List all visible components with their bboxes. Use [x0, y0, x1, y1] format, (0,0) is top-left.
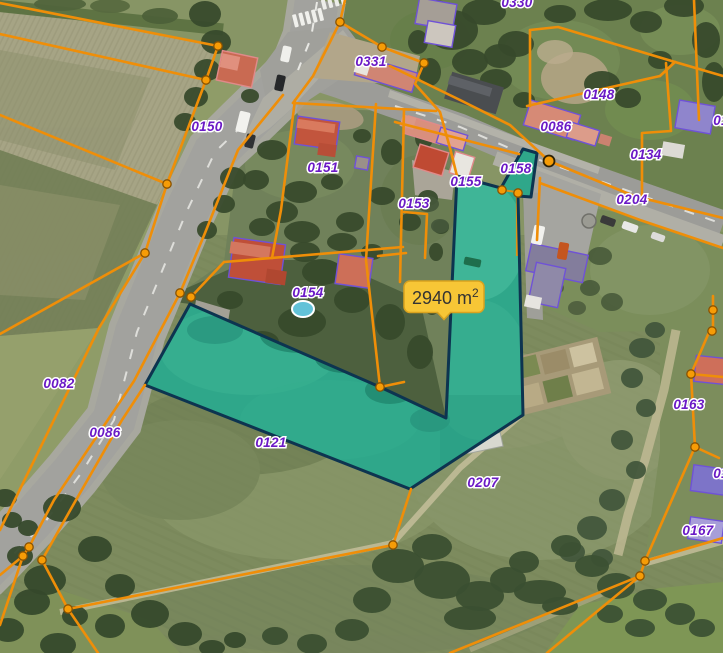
svg-text:0330: 0330: [501, 0, 532, 10]
svg-text:0148: 0148: [583, 87, 614, 102]
svg-text:0155: 0155: [450, 174, 481, 189]
svg-text:0207: 0207: [467, 475, 499, 490]
svg-text:0167: 0167: [682, 523, 714, 538]
svg-text:0154: 0154: [292, 285, 323, 300]
svg-text:2940 m2: 2940 m2: [412, 286, 479, 308]
svg-text:0134: 0134: [630, 147, 661, 162]
svg-text:0121: 0121: [255, 435, 286, 450]
svg-text:0086: 0086: [540, 119, 571, 134]
svg-text:0150: 0150: [191, 119, 222, 134]
svg-text:0151: 0151: [307, 160, 338, 175]
svg-text:0153: 0153: [398, 196, 429, 211]
svg-text:0331: 0331: [355, 54, 386, 69]
svg-text:0158: 0158: [500, 161, 531, 176]
svg-text:01: 01: [713, 466, 723, 481]
svg-text:0082: 0082: [43, 376, 74, 391]
svg-text:01: 01: [713, 113, 723, 128]
svg-text:0086: 0086: [89, 425, 120, 440]
svg-text:0204: 0204: [616, 192, 647, 207]
svg-text:0163: 0163: [673, 397, 704, 412]
